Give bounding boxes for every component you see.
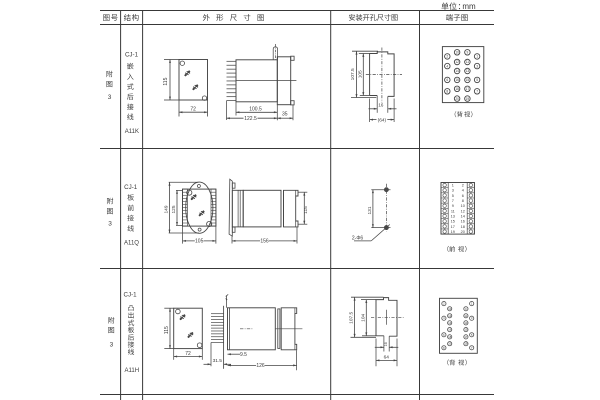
svg-text:18: 18 bbox=[455, 87, 459, 91]
svg-text:107.5: 107.5 bbox=[350, 68, 356, 80]
svg-text:18: 18 bbox=[461, 225, 465, 229]
svg-text:6: 6 bbox=[462, 194, 464, 198]
svg-text:14: 14 bbox=[455, 69, 459, 73]
svg-text:19: 19 bbox=[466, 97, 470, 101]
svg-text:3: 3 bbox=[452, 189, 454, 193]
svg-text:13: 13 bbox=[451, 214, 455, 218]
svg-text:125: 125 bbox=[171, 205, 177, 213]
svg-text:(64): (64) bbox=[378, 117, 387, 123]
svg-text:7: 7 bbox=[476, 89, 478, 93]
svg-text:8: 8 bbox=[446, 89, 448, 93]
svg-text:104: 104 bbox=[360, 313, 366, 321]
svg-text:35: 35 bbox=[282, 111, 288, 117]
svg-text:16: 16 bbox=[384, 342, 388, 346]
svg-text:13: 13 bbox=[466, 69, 470, 73]
svg-text:8: 8 bbox=[462, 199, 464, 203]
svg-text:16: 16 bbox=[378, 102, 384, 107]
svg-text:20: 20 bbox=[455, 97, 459, 101]
svg-text:3: 3 bbox=[476, 64, 478, 68]
svg-text:12: 12 bbox=[455, 60, 459, 64]
svg-text:12: 12 bbox=[461, 209, 465, 213]
svg-text:mm: mm bbox=[462, 2, 476, 11]
svg-text:156: 156 bbox=[260, 239, 269, 245]
svg-text:CJ-1: CJ-1 bbox=[125, 52, 139, 59]
svg-text:2: 2 bbox=[462, 184, 464, 188]
svg-text:1: 1 bbox=[476, 55, 478, 59]
svg-text:9: 9 bbox=[467, 50, 469, 54]
svg-text:15: 15 bbox=[466, 78, 470, 82]
svg-text:2: 2 bbox=[446, 55, 448, 59]
svg-text:A11Q: A11Q bbox=[124, 241, 139, 247]
svg-text:15: 15 bbox=[451, 220, 455, 224]
svg-text:10: 10 bbox=[461, 204, 465, 208]
svg-text:9: 9 bbox=[452, 204, 454, 208]
svg-text:115: 115 bbox=[303, 206, 309, 214]
svg-text:19: 19 bbox=[451, 230, 455, 234]
svg-text:CJ-1: CJ-1 bbox=[124, 292, 138, 299]
svg-text:3: 3 bbox=[108, 221, 112, 228]
svg-text:A11H: A11H bbox=[125, 368, 140, 374]
svg-text:1: 1 bbox=[452, 184, 454, 188]
svg-text:3: 3 bbox=[110, 342, 114, 349]
svg-text:31.5: 31.5 bbox=[213, 358, 223, 364]
svg-text:122.5: 122.5 bbox=[244, 116, 257, 122]
svg-text:11: 11 bbox=[451, 209, 455, 213]
svg-text:16: 16 bbox=[455, 78, 459, 82]
svg-text:20: 20 bbox=[461, 230, 465, 234]
svg-text:CJ-1: CJ-1 bbox=[124, 184, 138, 191]
svg-text:72: 72 bbox=[190, 107, 196, 113]
svg-text:105: 105 bbox=[195, 239, 204, 245]
svg-text:5: 5 bbox=[452, 194, 454, 198]
svg-text:11: 11 bbox=[466, 60, 470, 64]
svg-text:115: 115 bbox=[164, 326, 170, 334]
svg-text:100.5: 100.5 bbox=[249, 107, 262, 113]
svg-text:10: 10 bbox=[455, 50, 459, 54]
svg-text:126: 126 bbox=[256, 363, 265, 369]
svg-text:16: 16 bbox=[461, 220, 465, 224]
svg-text:17: 17 bbox=[451, 225, 455, 229]
svg-text:149: 149 bbox=[164, 205, 170, 213]
svg-text:9.5: 9.5 bbox=[240, 352, 247, 358]
svg-text:72: 72 bbox=[185, 351, 191, 357]
svg-text:107.5: 107.5 bbox=[349, 311, 355, 323]
svg-text:3: 3 bbox=[108, 94, 112, 101]
svg-text:131: 131 bbox=[367, 206, 373, 214]
svg-text:2-Φ6: 2-Φ6 bbox=[352, 235, 363, 241]
svg-text:5: 5 bbox=[476, 78, 478, 82]
svg-text:105: 105 bbox=[357, 70, 363, 78]
svg-text:17: 17 bbox=[466, 87, 470, 91]
svg-text:7: 7 bbox=[452, 199, 454, 203]
svg-text:14: 14 bbox=[461, 214, 465, 218]
svg-text:4: 4 bbox=[462, 189, 464, 193]
svg-text:6: 6 bbox=[446, 78, 448, 82]
svg-text:4: 4 bbox=[446, 64, 448, 68]
svg-text:A11K: A11K bbox=[125, 129, 139, 135]
svg-text:64: 64 bbox=[384, 354, 390, 360]
svg-text:115: 115 bbox=[163, 77, 169, 85]
